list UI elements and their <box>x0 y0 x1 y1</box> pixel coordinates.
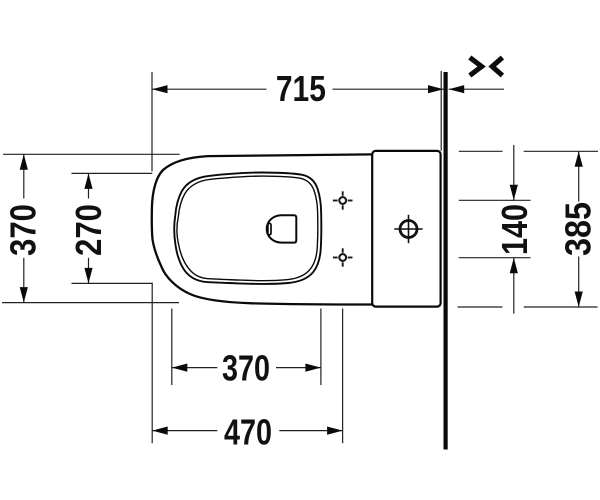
svg-text:140: 140 <box>494 204 535 255</box>
svg-text:270: 270 <box>68 204 109 256</box>
svg-text:470: 470 <box>224 412 272 453</box>
svg-text:385: 385 <box>557 202 598 256</box>
svg-text:715: 715 <box>276 68 326 109</box>
svg-text:370: 370 <box>2 204 43 256</box>
svg-text:370: 370 <box>222 348 270 389</box>
